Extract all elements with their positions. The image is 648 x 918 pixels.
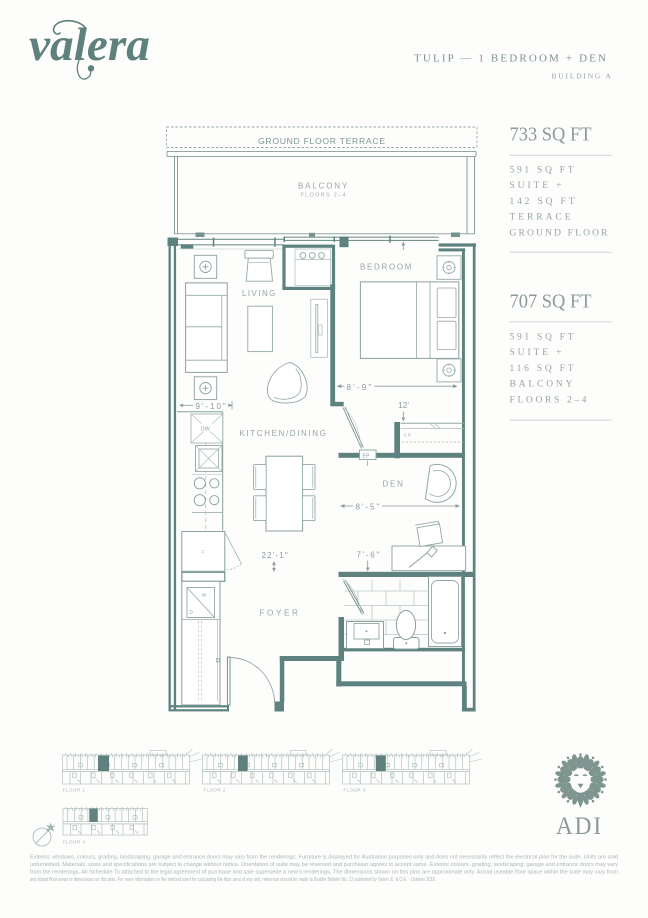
- svg-text:GROUND FLOOR TERRACE: GROUND FLOOR TERRACE: [258, 136, 387, 146]
- svg-text:DEN: DEN: [383, 480, 405, 489]
- svg-text:FLOORS 2–4: FLOORS 2–4: [301, 192, 347, 198]
- svg-text:BALCONY: BALCONY: [298, 182, 349, 191]
- svg-text:591 SQ FT: 591 SQ FT: [510, 166, 574, 176]
- svg-text:FLOORS 2–4: FLOORS 2–4: [510, 395, 587, 405]
- svg-text:KITCHEN/DINING: KITCHEN/DINING: [240, 429, 328, 438]
- svg-text:TERRACE: TERRACE: [510, 213, 571, 223]
- svg-text:valera: valera: [29, 19, 150, 71]
- svg-text:8'-5": 8'-5": [356, 503, 380, 512]
- svg-text:unfurnished. Materials, sizes: unfurnished. Materials, sizes and specif…: [30, 862, 618, 868]
- svg-text:SUITE +: SUITE +: [510, 181, 562, 191]
- svg-text:TULIP — 1 BEDROOM + DEN: TULIP — 1 BEDROOM + DEN: [414, 53, 609, 65]
- svg-text:DW: DW: [201, 427, 210, 433]
- svg-text:Exterior, windows, colours, gr: Exterior, windows, colours, grading, lan…: [30, 855, 618, 861]
- svg-text:707 SQ FT: 707 SQ FT: [510, 291, 592, 313]
- svg-text:7'-6": 7'-6": [357, 551, 380, 560]
- svg-text:CP: CP: [404, 433, 411, 438]
- svg-text:W: W: [202, 593, 207, 598]
- svg-text:SUITE +: SUITE +: [510, 348, 562, 358]
- svg-text:FLOOR 3: FLOOR 3: [344, 788, 366, 793]
- svg-text:9'-10": 9'-10": [196, 402, 227, 411]
- svg-text:FLOOR 4: FLOOR 4: [63, 840, 85, 845]
- svg-text:733 SQ FT: 733 SQ FT: [510, 124, 592, 146]
- svg-text:FLOOR 1: FLOOR 1: [63, 788, 85, 793]
- svg-text:12': 12': [398, 401, 409, 410]
- svg-text:591 SQ FT: 591 SQ FT: [510, 333, 574, 343]
- svg-text:BALCONY: BALCONY: [510, 380, 573, 390]
- svg-text:22'-1": 22'-1": [262, 551, 289, 560]
- svg-text:BEDROOM: BEDROOM: [360, 263, 413, 272]
- svg-text:LIVING: LIVING: [242, 289, 277, 298]
- svg-text:any stated floor areas or dime: any stated floor areas or dimensions on …: [30, 877, 436, 883]
- svg-text:F: F: [202, 550, 205, 555]
- svg-text:FLOOR 2: FLOOR 2: [204, 788, 226, 793]
- svg-text:BUILDING A: BUILDING A: [552, 72, 613, 81]
- svg-text:142 SQ FT: 142 SQ FT: [510, 197, 575, 207]
- svg-text:GROUND FLOOR: GROUND FLOOR: [510, 228, 609, 238]
- svg-text:FOYER: FOYER: [260, 609, 300, 618]
- svg-text:116 SQ FT: 116 SQ FT: [510, 364, 574, 374]
- svg-text:8'-9": 8'-9": [347, 383, 372, 392]
- svg-text:ADI: ADI: [556, 813, 603, 840]
- svg-text:from the renderings. All Sched: from the renderings. All Schedule To att…: [30, 870, 619, 876]
- svg-text:EP: EP: [363, 453, 371, 459]
